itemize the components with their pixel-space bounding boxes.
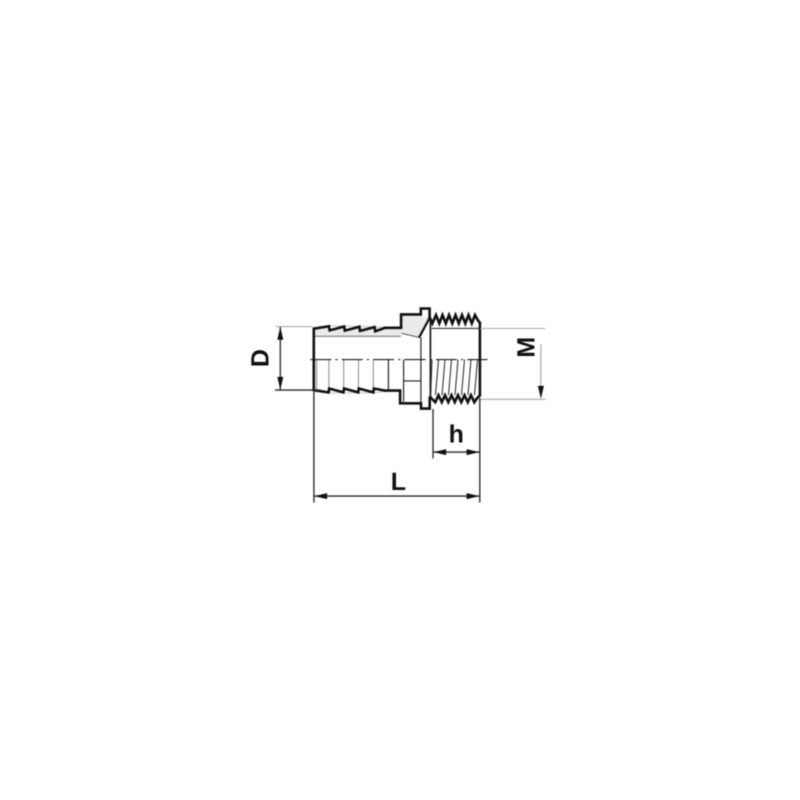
svg-text:L: L [391, 468, 406, 496]
svg-text:D: D [247, 349, 275, 367]
svg-text:M: M [513, 337, 541, 358]
svg-text:h: h [449, 420, 464, 448]
